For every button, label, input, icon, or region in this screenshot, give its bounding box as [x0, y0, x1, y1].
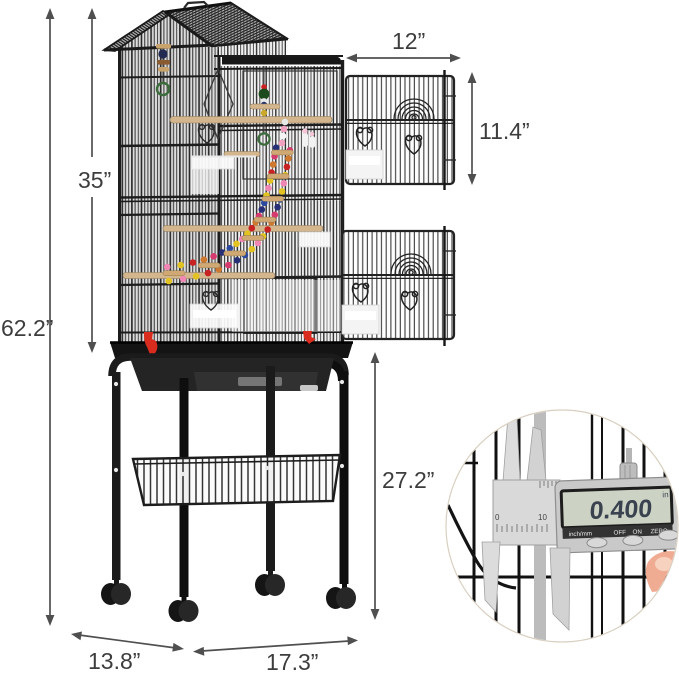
svg-text:17.3”: 17.3” — [266, 649, 318, 674]
svg-text:62.2”: 62.2” — [1, 315, 53, 341]
svg-text:11.4”: 11.4” — [479, 118, 530, 144]
svg-text:0.400: 0.400 — [589, 495, 653, 525]
svg-text:27.2”: 27.2” — [382, 467, 434, 493]
svg-text:10: 10 — [538, 513, 547, 522]
svg-text:13.8”: 13.8” — [88, 648, 140, 674]
svg-text:0: 0 — [495, 513, 500, 522]
svg-text:in: in — [662, 490, 669, 499]
svg-text:35”: 35” — [78, 167, 111, 193]
svg-text:12”: 12” — [392, 28, 425, 54]
svg-text:ON: ON — [632, 529, 642, 536]
svg-text:inch/mm: inch/mm — [569, 530, 593, 538]
svg-text:OFF: OFF — [614, 529, 627, 536]
